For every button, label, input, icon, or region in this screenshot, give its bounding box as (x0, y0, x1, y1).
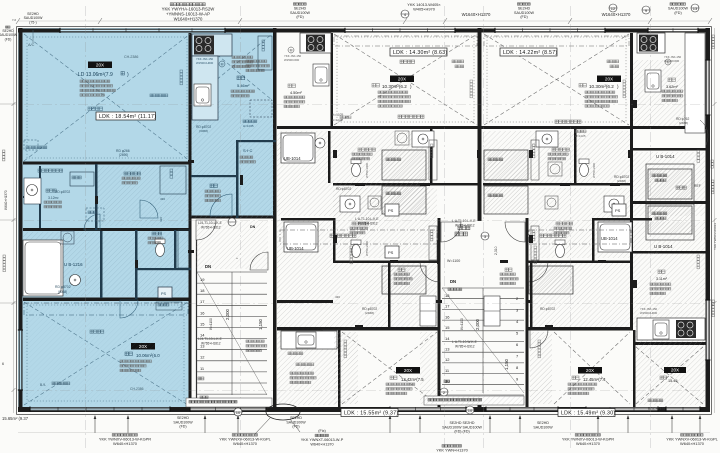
svg-text:1,150: 1,150 (504, 358, 509, 370)
svg-text:M: M (290, 49, 293, 53)
svg-text:H=1035: H=1035 (243, 124, 254, 128)
svg-text:(FD): (FD) (520, 15, 527, 19)
svg-text:H=1025: H=1025 (575, 134, 586, 138)
svg-text:RD φ8702: RD φ8702 (336, 187, 351, 191)
svg-text:20X: 20X (96, 63, 104, 68)
svg-text:L-77(-AI): L-77(-AI) (648, 251, 659, 255)
svg-text:W1640×H1370: W1640×H1370 (174, 17, 203, 22)
svg-text:12: 12 (200, 355, 205, 360)
svg-text:U B-1014: U B-1014 (656, 154, 675, 159)
svg-text:LDK : 18.54m² (11.17): LDK : 18.54m² (11.17) (99, 114, 156, 120)
svg-text:YKK YWNXT-06013-W-P: YKK YWNXT-06013-W-P (301, 438, 344, 442)
svg-text:2,000: 2,000 (225, 308, 230, 320)
svg-text:W640×H1370: W640×H1370 (310, 443, 333, 447)
svg-text:15: 15 (200, 321, 205, 326)
svg-text:(FD): (FD) (5, 37, 12, 41)
svg-text:SAUD100W: SAUD100W (668, 6, 688, 10)
svg-text:16: 16 (445, 314, 450, 319)
svg-text:PS: PS (615, 208, 621, 213)
svg-text:L·A-T1-10-L-K-E: L·A-T1-10-L-K-E (452, 219, 476, 223)
svg-text:SAUD100W: SAUD100W (514, 11, 534, 15)
svg-text:PS: PS (388, 250, 394, 255)
svg-text:M: M (221, 63, 224, 67)
svg-text:W=1100: W=1100 (209, 318, 213, 330)
svg-text:10: 10 (468, 408, 473, 413)
svg-text:W=1100: W=1100 (460, 318, 464, 330)
svg-text:RD φ8702: RD φ8702 (55, 190, 70, 194)
svg-text:1,150: 1,150 (258, 318, 263, 330)
svg-text:DN: DN (450, 279, 456, 284)
svg-text:12: 12 (611, 6, 616, 11)
svg-text:SAUD100W: SAUD100W (290, 11, 310, 15)
svg-text:13: 13 (445, 347, 450, 352)
svg-text:(2468): (2468) (679, 121, 688, 125)
svg-text:W640×H1370: W640×H1370 (680, 441, 705, 446)
svg-text:(2468): (2468) (365, 311, 374, 315)
svg-text:SE2HD: SE2HD (294, 6, 307, 10)
svg-text:(FD): (FD) (296, 15, 303, 19)
svg-text:(2690): (2690) (119, 153, 128, 157)
svg-text:S·I·C: S·I·C (243, 148, 252, 153)
svg-text:RD φ8702: RD φ8702 (540, 307, 555, 311)
svg-text:CH-2386: CH-2386 (124, 55, 138, 59)
svg-text:4.50m²: 4.50m² (290, 91, 303, 95)
svg-text:10: 10 (236, 410, 241, 415)
svg-text:18: 18 (200, 288, 205, 293)
svg-text:420: 420 (159, 217, 163, 222)
svg-text:PS: PS (388, 208, 394, 213)
svg-text:W1500×H600: W1500×H600 (640, 311, 658, 315)
svg-text:LDK : 15.55m² (9.37): LDK : 15.55m² (9.37) (344, 411, 398, 417)
svg-text:W405×H970: W405×H970 (413, 7, 436, 12)
svg-text:YKK YWN×H1370: YKK YWN×H1370 (436, 448, 468, 453)
svg-text:W750×2400: W750×2400 (365, 162, 369, 178)
svg-text:H=1025: H=1025 (332, 118, 343, 122)
svg-text:SAUD100W: SAUD100W (533, 425, 553, 429)
svg-text:6: 6 (2, 362, 4, 366)
svg-text:430: 430 (335, 295, 340, 299)
svg-text:(FD): (FD) (674, 11, 681, 15)
svg-text:20X: 20X (605, 77, 613, 82)
svg-text:3.62m²: 3.62m² (666, 85, 679, 89)
svg-text:5.46m²: 5.46m² (237, 83, 250, 88)
svg-text:16: 16 (200, 310, 205, 315)
svg-text:W640×H1370: W640×H1370 (233, 441, 258, 446)
svg-text:W640×H1370: W640×H1370 (576, 441, 601, 446)
svg-text:15: 15 (445, 325, 450, 330)
svg-text:14: 14 (445, 336, 450, 341)
svg-text:W=1100: W=1100 (447, 259, 460, 263)
svg-text:2,000: 2,000 (475, 318, 480, 330)
svg-text:BOX H1670: BOX H1670 (648, 407, 665, 411)
svg-text:10.30m²(6.2: 10.30m²(6.2 (382, 84, 407, 89)
svg-text:12.45m²(7.4: 12.45m²(7.4 (583, 377, 606, 382)
svg-text:YKK YWNXV-06013: YKK YWNXV-06013 (713, 223, 717, 250)
svg-text:L·A-T1-10-W-K-E: L·A-T1-10-W-K-E (452, 340, 477, 344)
svg-text:LDK : 14.22m² (8.57): LDK : 14.22m² (8.57) (503, 50, 557, 56)
svg-text:19: 19 (200, 277, 205, 282)
svg-text:20X: 20X (398, 77, 406, 82)
svg-text:13: 13 (693, 6, 698, 11)
svg-text:W1500×H600: W1500×H600 (196, 61, 214, 65)
svg-text:W765×H1812: W765×H1812 (201, 342, 221, 346)
svg-text:LD 13.06m²(7.9: LD 13.06m²(7.9 (78, 72, 113, 78)
svg-text:12: 12 (445, 357, 450, 362)
svg-text:3.11m²: 3.11m² (656, 277, 668, 281)
svg-text:15.45: 15.45 (668, 379, 678, 383)
svg-text:(FD): (FD) (179, 425, 186, 429)
svg-text:H=1025: H=1025 (332, 113, 343, 117)
svg-text:W750×2400: W750×2400 (365, 240, 369, 256)
svg-text:430: 430 (160, 197, 165, 201)
svg-text:(FD) (FD): (FD) (FD) (454, 430, 469, 434)
svg-text:LDK : 15.49m² (9.30): LDK : 15.49m² (9.30) (561, 411, 615, 417)
svg-text:10.30m²(6.2: 10.30m²(6.2 (589, 84, 614, 89)
svg-text:U B-1216: U B-1216 (64, 262, 83, 267)
svg-text:LDK : 14.30m² (8.63): LDK : 14.30m² (8.63) (393, 50, 447, 56)
svg-text:U B-1014: U B-1014 (654, 244, 673, 249)
svg-text:20X: 20X (586, 368, 594, 373)
svg-text:(3068): (3068) (199, 129, 208, 133)
svg-text:W1500×600: W1500×600 (284, 58, 300, 62)
svg-text:17: 17 (445, 304, 450, 309)
svg-text:LJ4-T1-10-L-K-E: LJ4-T1-10-L-K-E (198, 337, 222, 341)
svg-text:RD φ8702: RD φ8702 (55, 285, 71, 289)
svg-text:(6068): (6068) (58, 290, 67, 294)
svg-text:W1640×H1370: W1640×H1370 (602, 12, 631, 17)
svg-text:W750×2400: W750×2400 (592, 162, 596, 178)
svg-text:W785×H1912: W785×H1912 (455, 345, 475, 349)
svg-text:W640×H1370: W640×H1370 (4, 190, 8, 210)
svg-text:A/C: A/C (28, 43, 35, 47)
svg-text:3.12m²: 3.12m² (48, 196, 59, 200)
svg-text:UB-1014: UB-1014 (287, 246, 304, 251)
svg-text:15.65m² (9.37: 15.65m² (9.37 (2, 416, 29, 421)
svg-text:SE2HD: SE2HD (518, 6, 531, 10)
svg-text:20X: 20X (404, 368, 412, 373)
svg-text:REF: REF (694, 184, 701, 188)
svg-text:PS: PS (161, 292, 167, 296)
svg-text:UB-1014: UB-1014 (284, 156, 301, 161)
svg-text:2,310: 2,310 (494, 246, 498, 255)
svg-text:W640×H1370: W640×H1370 (113, 441, 138, 446)
svg-text:W785×H1912: W785×H1912 (358, 222, 378, 226)
svg-text:UB-1014: UB-1014 (601, 236, 618, 241)
svg-text:18: 18 (445, 293, 450, 298)
svg-text:7-6: 7-6 (12, 18, 16, 22)
svg-text:M: M (667, 61, 670, 65)
svg-text:W1640×H1370: W1640×H1370 (462, 12, 491, 17)
svg-text:20X: 20X (671, 368, 679, 373)
svg-text:(2468): (2468) (617, 179, 626, 183)
